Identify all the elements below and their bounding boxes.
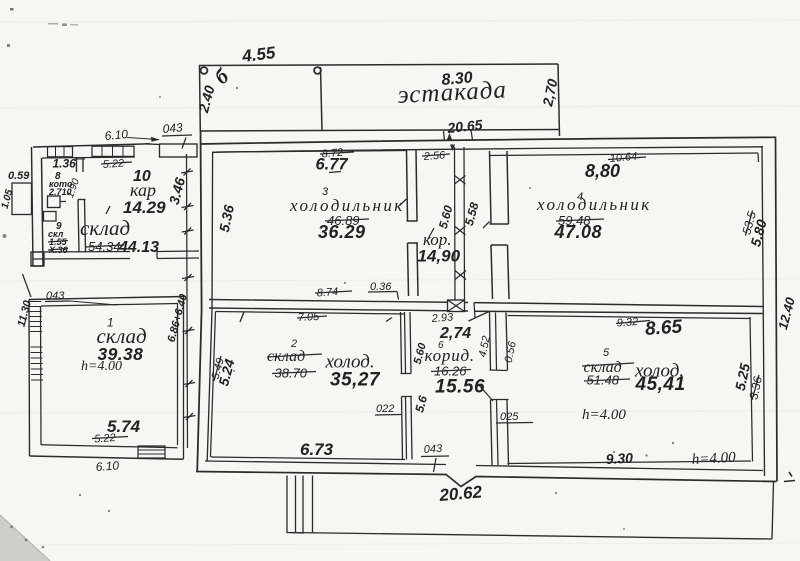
svg-text:14,90: 14,90: [418, 247, 461, 266]
svg-text:043: 043: [423, 443, 443, 456]
svg-text:20.65: 20.65: [446, 116, 484, 136]
svg-text:14.29: 14.29: [123, 198, 166, 217]
svg-text:3.46: 3.46: [166, 176, 189, 207]
svg-text:47.08: 47.08: [554, 222, 603, 242]
svg-text:5.6: 5.6: [412, 394, 430, 414]
svg-text:кар: кар: [130, 180, 156, 200]
svg-text:5.36: 5.36: [216, 203, 237, 233]
svg-text:043: 043: [46, 290, 65, 302]
svg-text:2.93: 2.93: [430, 311, 454, 325]
svg-text:0.59: 0.59: [8, 170, 30, 182]
svg-text:20.62: 20.62: [438, 482, 484, 505]
svg-text:5: 5: [603, 347, 610, 359]
svg-text:1.36: 1.36: [53, 157, 77, 171]
svg-text:4.55: 4.55: [240, 43, 277, 66]
svg-text:45,41: 45,41: [635, 374, 686, 395]
svg-text:холодильник: холодильник: [536, 195, 652, 214]
svg-text:6.73: 6.73: [300, 440, 334, 459]
svg-text:1.05: 1.05: [0, 188, 15, 210]
svg-text:2.40: 2.40: [195, 84, 218, 116]
svg-text:h=4.00: h=4.00: [691, 450, 736, 468]
svg-text:44.13: 44.13: [118, 239, 159, 256]
svg-text:0.36: 0.36: [370, 281, 392, 293]
svg-text:11.30: 11.30: [16, 298, 35, 328]
svg-text:6.10: 6.10: [104, 127, 129, 143]
svg-text:6.77: 6.77: [316, 156, 349, 174]
svg-text:h=4.00: h=4.00: [582, 407, 626, 423]
svg-text:022: 022: [376, 403, 394, 415]
svg-text:12.40: 12.40: [775, 295, 798, 331]
svg-text:2,70: 2,70: [539, 77, 561, 108]
svg-text:8.65: 8.65: [644, 316, 683, 340]
svg-text:36.29: 36.29: [318, 222, 366, 242]
svg-text:h=4.00: h=4.00: [81, 359, 122, 374]
svg-text:5.58: 5.58: [462, 201, 482, 227]
svg-text:корид.: корид.: [425, 346, 475, 365]
svg-text:043: 043: [162, 120, 183, 136]
svg-text:6.10: 6.10: [95, 458, 120, 474]
svg-text:35,27: 35,27: [330, 370, 381, 391]
svg-text:8,80: 8,80: [585, 161, 620, 181]
svg-text:2,74: 2,74: [439, 325, 471, 342]
svg-text:б: б: [210, 63, 235, 89]
svg-text:5.60: 5.60: [436, 204, 456, 230]
svg-text:15.56: 15.56: [435, 377, 485, 398]
svg-text:9.30: 9.30: [605, 450, 633, 467]
svg-text:склад: склад: [80, 216, 130, 240]
svg-text:025: 025: [500, 411, 519, 423]
svg-text:0.56: 0.56: [503, 340, 519, 364]
svg-text:эстакада: эстакада: [397, 76, 508, 109]
